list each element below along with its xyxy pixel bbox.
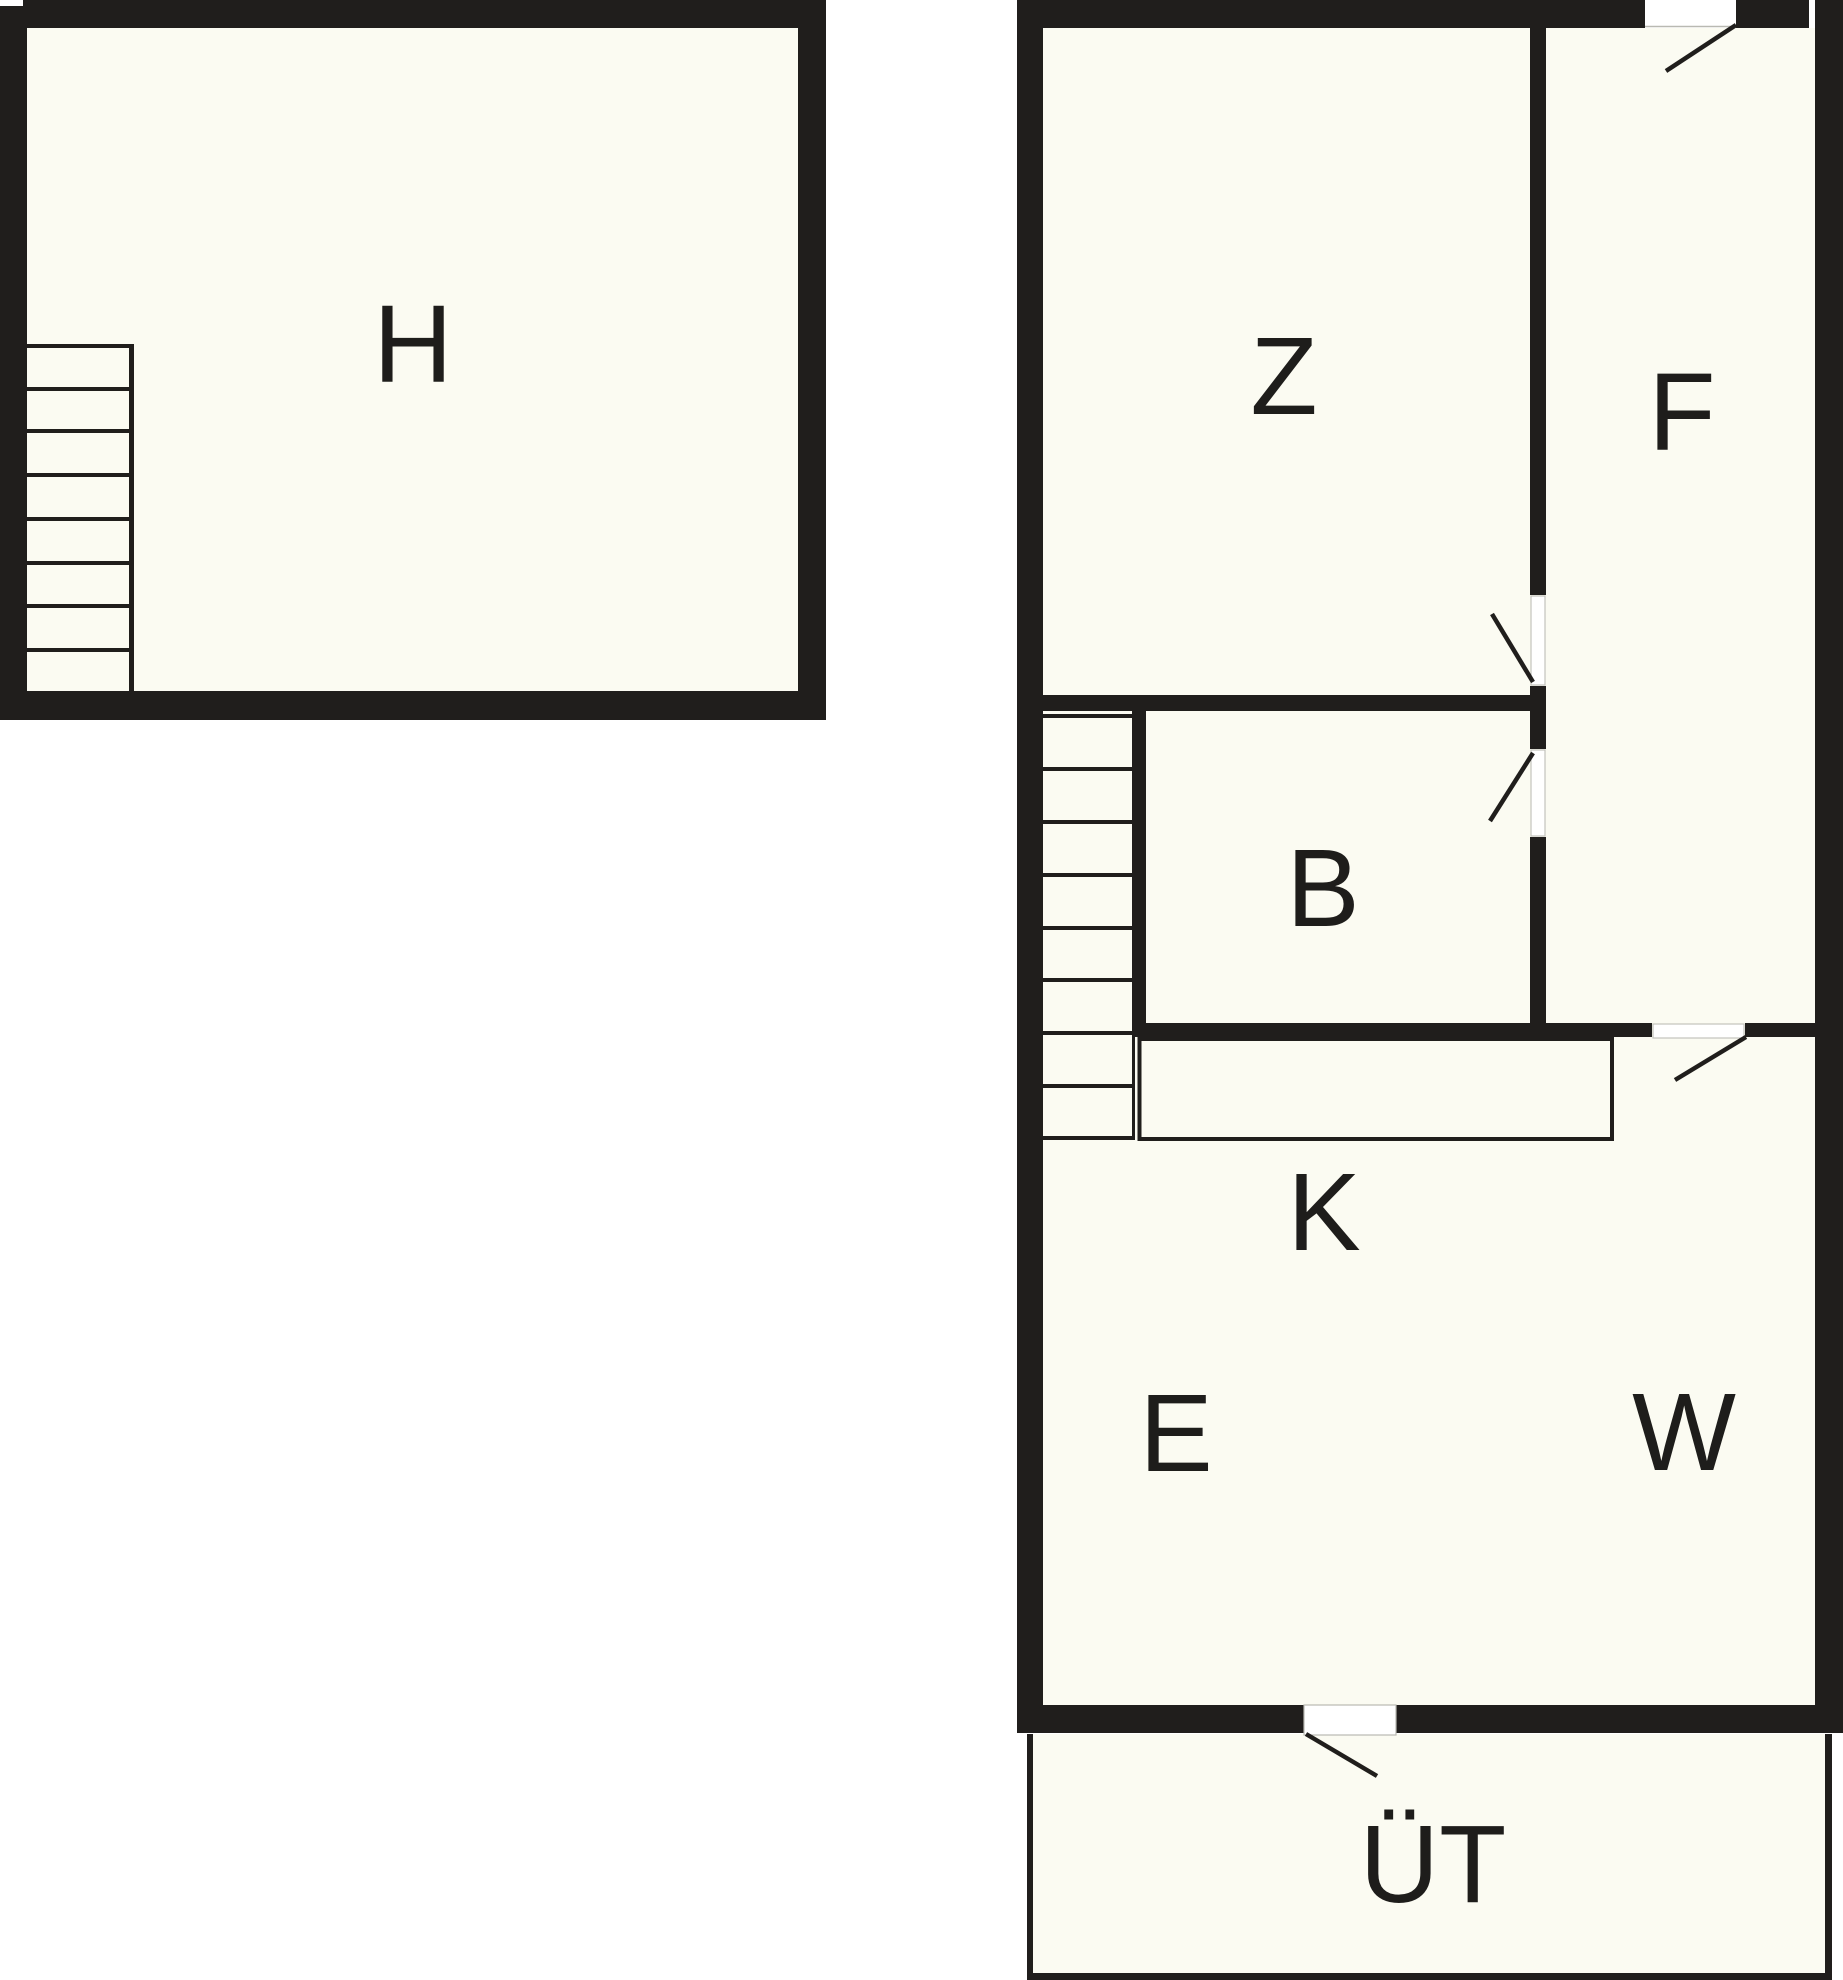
svg-text:Z: Z <box>1250 315 1317 438</box>
svg-text:H: H <box>373 283 452 406</box>
svg-text:F: F <box>1648 351 1715 474</box>
svg-text:K: K <box>1287 1151 1360 1274</box>
svg-text:E: E <box>1139 1372 1212 1495</box>
svg-text:B: B <box>1286 827 1359 950</box>
svg-text:ÜT: ÜT <box>1360 1803 1507 1926</box>
svg-text:W: W <box>1632 1371 1736 1494</box>
